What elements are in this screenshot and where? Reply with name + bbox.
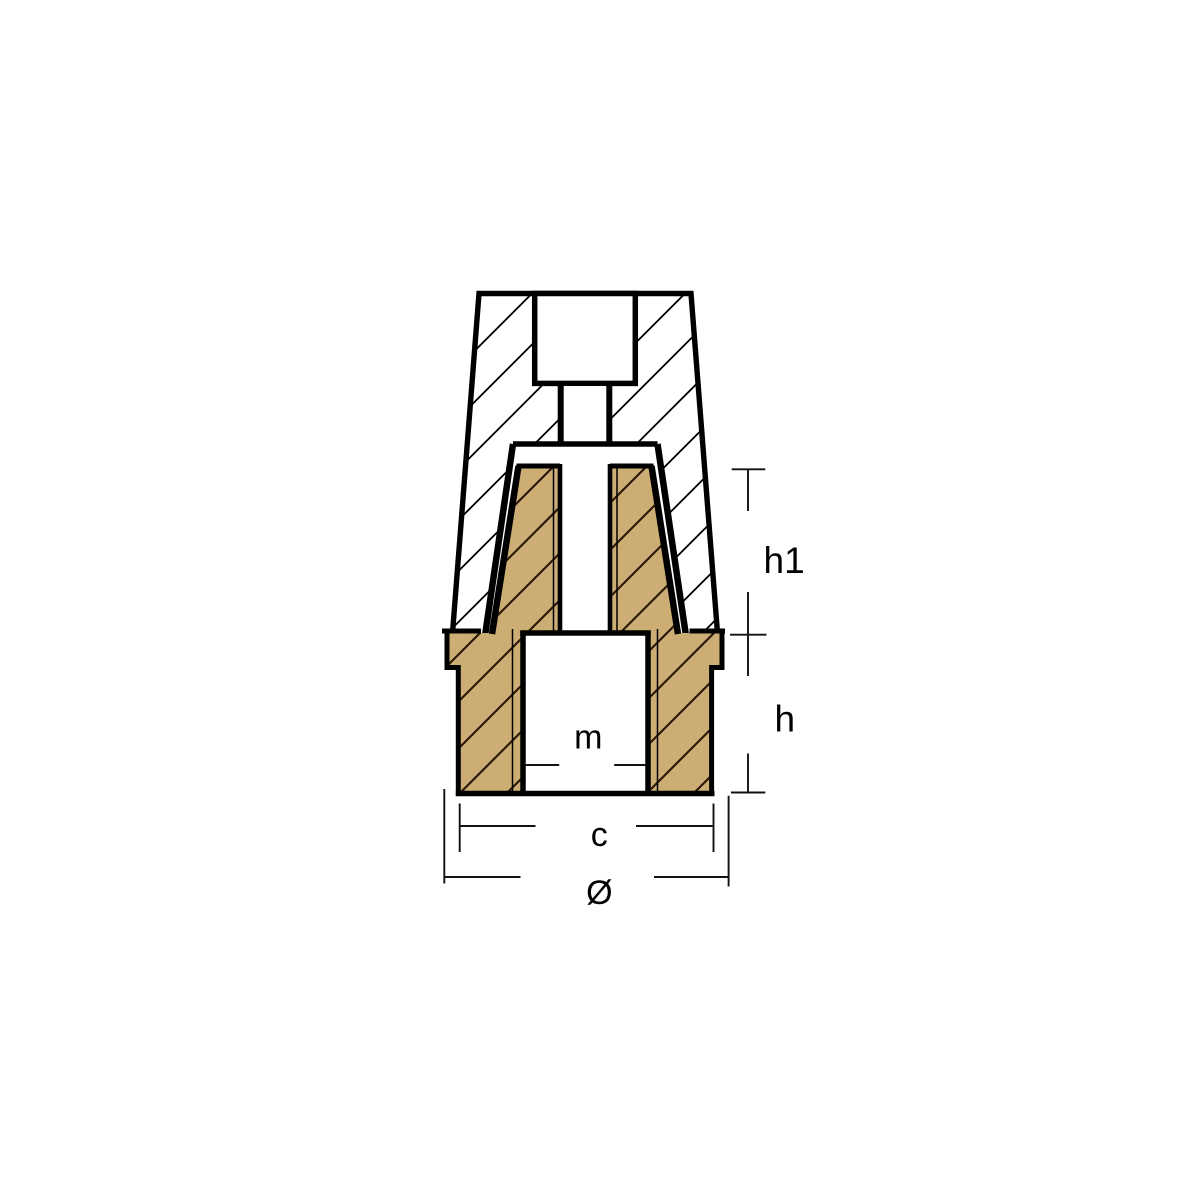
svg-text:Ø: Ø xyxy=(586,874,612,912)
svg-text:h1: h1 xyxy=(764,540,805,581)
svg-text:h: h xyxy=(775,698,796,739)
svg-text:c: c xyxy=(591,816,608,854)
svg-text:m: m xyxy=(574,718,602,756)
